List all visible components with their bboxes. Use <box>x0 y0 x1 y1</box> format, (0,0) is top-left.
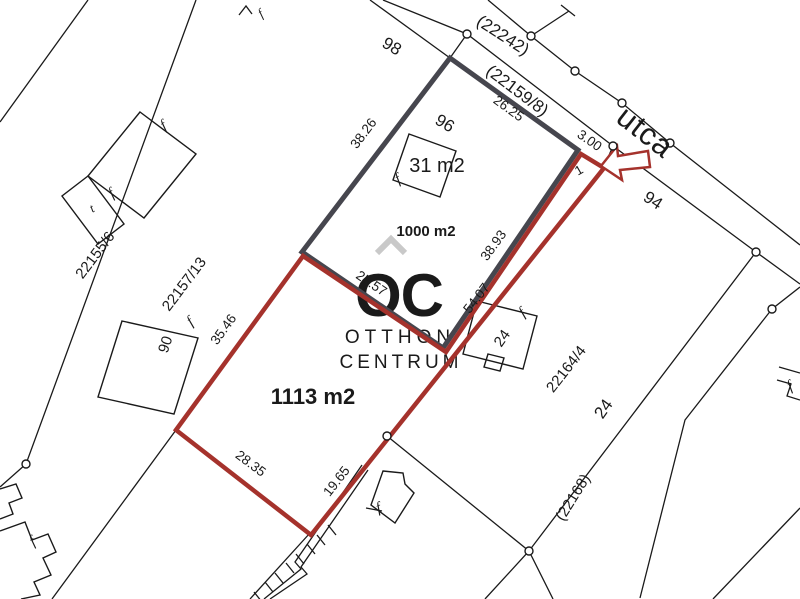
survey-mark-f: f <box>784 378 797 395</box>
watermark-caret-icon <box>377 239 405 253</box>
small-survey-mark-top <box>239 6 252 15</box>
house-number-96: 96 <box>432 110 458 136</box>
boundary-node <box>752 248 760 256</box>
measurement-28-35: 28.35 <box>233 447 269 479</box>
cadastral-map: OC OTTHON CENTRUM <box>0 0 800 599</box>
survey-mark-f: f <box>157 117 171 134</box>
boundary-node <box>609 142 617 150</box>
building-bottom-center <box>371 471 414 523</box>
measurement-38-26: 38.26 <box>347 115 379 151</box>
path-strip-line-2 <box>270 470 368 599</box>
area-label-1000m2: 1000 m2 <box>396 223 455 240</box>
house-number-24-building: 24 <box>491 327 514 350</box>
boundary-node <box>463 30 471 38</box>
boundary-node <box>525 547 533 555</box>
boundary-node <box>383 432 391 440</box>
survey-mark-t: t <box>86 201 97 216</box>
boundary-node <box>22 460 30 468</box>
building-90 <box>98 321 198 414</box>
survey-mark-f: f <box>392 171 405 188</box>
boundary-branch-line <box>529 551 553 599</box>
boundary-line-bottom-right <box>713 508 800 599</box>
parcel-label-22157-13: 22157/13 <box>159 254 210 314</box>
boundary-line-southwest-extension <box>52 430 176 599</box>
survey-mark-f: f <box>184 313 199 329</box>
road-22168-southeast-line <box>640 287 800 598</box>
boundary-line-east <box>485 252 756 599</box>
survey-mark-f: f <box>105 185 119 202</box>
road-label-22168: (22168) <box>552 471 594 524</box>
house-number-24-parcel: 24 <box>590 396 616 422</box>
house-number-90: 90 <box>155 334 176 355</box>
boundary-node <box>768 305 776 313</box>
boundary-node <box>527 32 535 40</box>
entrance-number-label: 1 <box>572 162 586 179</box>
building-24-annex <box>484 354 504 371</box>
boundary-line-22164-4 <box>387 436 529 551</box>
building-22155-6-main <box>88 112 196 218</box>
area-label-31m2: 31 m2 <box>409 155 465 177</box>
building-bottom-left-small <box>0 484 22 519</box>
survey-mark-f: f <box>255 5 269 21</box>
survey-mark-f: f <box>26 533 40 550</box>
survey-spur-line <box>531 5 575 36</box>
parcel-label-22164-4: 22164/4 <box>543 343 590 396</box>
building-bottom-left-stepped <box>0 522 56 599</box>
road-label-22242: (22242) <box>473 11 533 59</box>
measurement-35-46: 35.46 <box>207 311 239 347</box>
boundary-node <box>571 67 579 75</box>
survey-mark-f: f <box>516 304 531 320</box>
area-label-1113m2: 1113 m2 <box>271 384 355 409</box>
cadastral-map-drawing: OC OTTHON CENTRUM <box>0 0 800 599</box>
house-number-98: 98 <box>379 33 405 59</box>
boundary-line-top-left <box>0 0 88 122</box>
measurement-19-65: 19.65 <box>320 463 353 499</box>
house-number-94: 94 <box>640 187 666 213</box>
